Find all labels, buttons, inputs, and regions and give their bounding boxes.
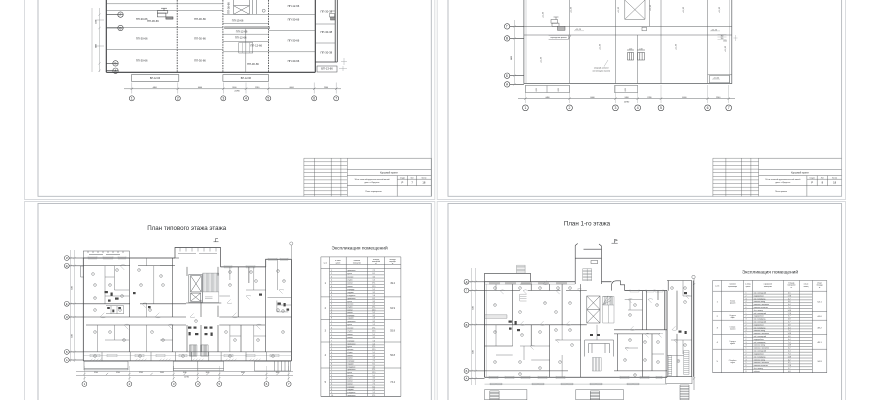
svg-text:жилая: жилая [347,334,352,336]
svg-text:название: название [729,284,736,286]
svg-text:площадь: площадь [816,285,822,287]
svg-text:прихожая: прихожая [347,343,355,345]
svg-text:7: 7 [572,345,573,347]
svg-text:5: 5 [746,362,747,364]
svg-text:4: 4 [95,332,96,334]
svg-text:2: 2 [556,330,557,332]
svg-text:кол-во: кол-во [804,284,809,286]
svg-text:6: 6 [678,361,679,363]
svg-text:6: 6 [630,315,631,317]
svg-text:Листов: Листов [832,177,837,179]
svg-text:5: 5 [746,304,747,306]
svg-text:3: 3 [331,304,332,306]
svg-text:каб. совещаний: каб. совещаний [754,291,766,294]
svg-text:ПП-30-66: ПП-30-66 [194,59,206,63]
svg-text:4: 4 [558,288,559,290]
svg-text:9: 9 [273,356,274,358]
svg-text:Листов: Листов [421,177,426,179]
svg-text:с/узел: с/узел [347,352,352,354]
svg-text:9: 9 [520,374,521,376]
svg-text:2: 2 [235,340,236,342]
svg-text:8.1: 8.1 [372,273,375,275]
svg-text:4: 4 [637,106,639,110]
svg-text:прихожая: прихожая [347,395,355,397]
svg-text:1: 1 [331,298,332,300]
svg-text:кладовая: кладовая [347,295,355,297]
svg-text:1.6: 1.6 [372,340,375,342]
svg-text:12.5: 12.5 [372,309,376,311]
svg-text:73.4: 73.4 [390,381,395,384]
svg-text:4: 4 [331,279,332,281]
svg-text:17.1: 17.1 [372,327,376,329]
svg-text:3040: 3040 [160,372,164,374]
svg-text:3: 3 [746,342,747,344]
svg-text:2: 2 [331,324,332,326]
svg-text:гардеробная: гардеробная [754,353,764,355]
svg-text:площадь: площадь [389,259,395,261]
svg-text:17.8: 17.8 [788,365,791,367]
svg-text:коридор: коридор [347,289,354,291]
svg-text:1.6: 1.6 [372,381,375,383]
svg-text:жилая: жилая [347,286,352,288]
svg-text:6400: 6400 [72,286,74,290]
svg-text:название: название [354,260,361,262]
svg-text:360: 360 [721,36,724,38]
svg-text:6: 6 [331,286,332,288]
svg-text:ПП-12-66: ПП-12-66 [288,4,300,8]
svg-text:3240: 3240 [183,372,187,374]
svg-text:2500: 2500 [96,20,98,24]
svg-text:1: 1 [524,106,526,110]
svg-text:Курсовой проект: Курсовой проект [791,171,810,174]
svg-text:жилая: жилая [347,337,352,339]
svg-text:2: 2 [746,339,747,341]
svg-text:ПП-36-66: ПП-36-66 [226,2,230,14]
svg-text:2400: 2400 [624,97,628,99]
svg-text:2: 2 [331,372,332,374]
svg-text:6: 6 [140,356,141,358]
svg-text:кухня: кухня [347,372,352,374]
svg-text:ПП-30-38: ПП-30-38 [320,51,332,55]
svg-text:6000: 6000 [682,97,686,99]
svg-text:5.1: 5.1 [372,375,375,377]
svg-text:Курсовой проект: Курсовой проект [380,171,399,174]
svg-text:2: 2 [746,295,747,297]
svg-text:6: 6 [331,358,332,360]
svg-text:Б: Б [466,369,468,373]
svg-text:План перекрытия: План перекрытия [365,191,381,193]
svg-text:3.2: 3.2 [372,292,375,294]
svg-text:быт. помещ: быт. помещ [754,310,764,312]
svg-text:8: 8 [331,292,332,294]
svg-text:9: 9 [196,321,197,323]
svg-text:Стадия: Стадия [810,177,815,179]
svg-text:10: 10 [331,395,333,397]
svg-text:+11,25: +11,25 [541,56,543,63]
svg-text:6400: 6400 [473,306,475,310]
svg-text:4: 4 [331,306,332,308]
svg-text:6: 6 [251,272,252,274]
svg-text:6: 6 [707,106,709,110]
svg-text:5: 5 [746,333,747,335]
svg-text:каб. совещаний: каб. совещаний [754,335,766,338]
svg-text:коридор: коридор [347,386,354,388]
svg-text:4.2: 4.2 [788,359,790,361]
svg-text:3.2: 3.2 [372,389,375,391]
svg-text:2: 2 [569,106,571,110]
svg-text:помещения: помещения [353,262,361,264]
svg-text:7: 7 [278,271,279,273]
svg-text:8: 8 [495,332,496,334]
svg-text:8: 8 [331,363,332,365]
svg-text:комната косметик: комната косметик [754,307,768,309]
svg-text:Р: Р [402,181,404,185]
svg-text:5: 5 [95,285,96,287]
svg-text:2400: 2400 [232,87,236,89]
svg-text:Лист: Лист [410,177,414,179]
svg-text:2960: 2960 [716,97,720,99]
svg-text:2: 2 [278,310,279,312]
svg-text:1.2: 1.2 [372,343,375,345]
svg-text:ПП-30-66: ПП-30-66 [247,62,259,66]
svg-text:9: 9 [522,335,523,337]
svg-text:+11,25: +11,25 [725,45,727,52]
svg-text:кладовая: кладовая [347,392,355,394]
svg-text:4: 4 [331,352,332,354]
svg-text:5.7: 5.7 [788,321,790,323]
svg-text:5: 5 [230,272,231,274]
svg-text:4: 4 [645,360,646,362]
svg-text:14.8: 14.8 [788,333,791,335]
svg-text:3: 3 [746,356,747,358]
svg-text:гардеробная: гардеробная [754,295,764,297]
svg-text:2: 2 [331,301,332,303]
svg-text:3: 3 [540,288,541,290]
svg-text:7: 7 [331,386,332,388]
svg-text:В: В [466,323,468,327]
svg-text:4.4: 4.4 [788,327,790,329]
svg-text:7: 7 [331,340,332,342]
svg-text:В: В [506,37,508,41]
svg-text:2: 2 [635,305,636,307]
svg-text:лоджия: лоджия [347,292,353,294]
svg-text:7: 7 [331,289,332,291]
svg-text:4.8: 4.8 [788,336,790,338]
svg-text:3200: 3200 [276,372,280,374]
svg-text:гардеробная: гардеробная [754,324,764,326]
svg-text:3: 3 [657,305,658,307]
svg-text:9: 9 [331,366,332,368]
svg-text:План кровли: План кровли [775,191,787,193]
svg-text:6: 6 [331,312,332,314]
svg-text:6640: 6640 [241,372,245,374]
svg-text:24780: 24780 [184,376,189,378]
svg-text:каб. заведующ: каб. заведующ [754,327,766,329]
svg-text:5.1: 5.1 [372,289,375,291]
svg-text:Экспликация помещений: Экспликация помещений [742,268,798,275]
svg-text:помещения: помещения [764,286,772,288]
svg-text:Д: Д [466,280,468,284]
svg-text:8: 8 [746,371,747,373]
svg-text:каб. заведующ: каб. заведующ [754,298,766,300]
svg-text:1300: 1300 [723,40,727,42]
svg-text:лоджия: лоджия [347,389,353,391]
svg-text:Лист: Лист [821,177,825,179]
svg-text:8.1: 8.1 [372,298,375,300]
svg-text:12.5: 12.5 [372,349,376,351]
svg-text:7.2: 7.2 [372,383,375,385]
svg-text:3: 3 [746,319,747,321]
svg-text:55.8: 55.8 [390,330,395,333]
svg-text:9: 9 [570,303,571,305]
svg-text:8.1: 8.1 [372,363,375,365]
svg-text:390: 390 [721,38,724,40]
svg-text:1: 1 [746,350,747,352]
svg-text:1: 1 [746,292,747,294]
svg-text:4.4: 4.4 [788,339,790,341]
svg-text:ванная: ванная [347,276,353,278]
svg-text:с/узел: с/узел [347,331,352,333]
svg-text:4: 4 [672,288,673,290]
svg-text:3: 3 [258,340,259,342]
svg-text:ванная: ванная [347,327,353,329]
svg-text:3: 3 [614,106,616,110]
svg-text:3.2: 3.2 [372,276,375,278]
svg-text:поликл: поликл [730,329,735,331]
svg-text:ванная: ванная [347,304,353,306]
svg-text:17.1: 17.1 [372,395,376,397]
svg-text:+11,25: +11,25 [650,4,652,11]
svg-text:+11,25: +11,25 [543,11,545,18]
svg-text:4.4: 4.4 [788,350,790,352]
svg-text:комната завед: комната завед [754,330,765,332]
svg-text:лоджия: лоджия [347,318,353,320]
svg-text:4: 4 [245,97,247,101]
svg-text:1.2: 1.2 [372,279,375,281]
svg-text:1: 1 [746,321,747,323]
svg-text:9: 9 [230,285,231,287]
svg-text:3: 3 [283,311,284,313]
svg-text:отдел: отдел [730,362,734,364]
svg-text:3.2: 3.2 [372,378,375,380]
svg-text:Г: Г [120,13,122,17]
svg-text:7: 7 [331,361,332,363]
svg-text:1: 1 [331,369,332,371]
svg-text:+11,25: +11,25 [600,43,602,50]
svg-text:каб. заведующ: каб. заведующ [754,342,766,344]
svg-text:6: 6 [540,368,541,370]
svg-text:5: 5 [110,332,111,334]
svg-text:комната завед: комната завед [754,301,765,303]
svg-text:Д: Д [66,315,68,319]
svg-text:дом в г. Иркутске: дом в г. Иркутске [775,182,790,184]
svg-text:2: 2 [95,310,96,312]
svg-text:жилая: жилая [347,309,352,311]
svg-text:1: 1 [331,343,332,345]
svg-text:4: 4 [495,362,496,364]
svg-text:3: 3 [222,97,224,101]
svg-text:коридор: коридор [347,315,354,317]
svg-text:1.Эл: 1.Эл [629,48,632,50]
svg-text:6: 6 [110,285,111,287]
svg-text:8: 8 [630,340,631,342]
svg-text:4.5: 4.5 [788,292,790,294]
svg-text:2: 2 [331,346,332,348]
svg-text:БП-12-66: БП-12-66 [150,77,161,80]
svg-text:1.6: 1.6 [372,358,375,360]
svg-text:1: 1 [746,313,747,315]
svg-text:комната завед: комната завед [754,345,765,347]
svg-text:6: 6 [124,340,125,342]
svg-text:+11,25: +11,25 [683,6,685,13]
svg-text:8: 8 [331,318,332,320]
svg-text:ПП-30-38: ПП-30-38 [320,10,332,14]
svg-text:8: 8 [95,298,96,300]
svg-text:+11,25: +11,25 [719,6,721,13]
svg-text:Экспликация помещений: Экспликация помещений [332,245,388,252]
svg-text:4: 4 [746,359,747,361]
svg-text:7: 7 [746,310,747,312]
svg-text:3200: 3200 [139,372,143,374]
svg-text:6400: 6400 [473,350,475,354]
svg-text:1: 1 [556,312,557,314]
svg-text:коридор: коридор [347,340,354,342]
svg-text:прихожая: прихожая [347,321,355,323]
svg-text:жилая: жилая [347,358,352,360]
svg-text:6: 6 [331,383,332,385]
svg-text:помещения: помещения [787,285,795,287]
svg-text:прихожая: прихожая [347,369,355,371]
svg-text:3240: 3240 [116,372,120,374]
svg-text:ограждение кровли: ограждение кровли [550,37,566,39]
svg-text:ПП-30-66: ПП-30-66 [136,59,148,63]
svg-text:2: 2 [746,353,747,355]
svg-text:с/узел: с/узел [347,279,352,281]
svg-text:8: 8 [331,389,332,391]
svg-text:5: 5 [95,356,96,358]
svg-text:5: 5 [267,97,269,101]
svg-text:общая: общая [817,283,822,285]
svg-text:6400: 6400 [511,56,513,60]
svg-text:каб. заведующ: каб. заведующ [754,319,766,321]
svg-text:56.8: 56.8 [390,354,395,357]
svg-text:4: 4 [331,331,332,333]
svg-text:5: 5 [331,283,332,285]
svg-text:4: 4 [331,378,332,380]
svg-text:17.1: 17.1 [372,346,376,348]
svg-text:1.6: 1.6 [372,295,375,297]
svg-text:6: 6 [495,305,496,307]
svg-text:6: 6 [313,97,315,101]
svg-text:5: 5 [331,309,332,311]
svg-text:9: 9 [331,392,332,394]
svg-text:1: 1 [331,321,332,323]
svg-text:кухня: кухня [347,324,352,326]
svg-text:БП-13-66: БП-13-66 [321,66,333,70]
svg-text:6400: 6400 [96,44,98,48]
svg-text:7: 7 [728,106,730,110]
svg-text:24780: 24780 [624,101,629,103]
svg-text:8: 8 [230,356,231,358]
svg-text:3: 3 [139,270,140,272]
svg-text:6: 6 [331,337,332,339]
svg-text:3: 3 [570,330,571,332]
svg-text:5: 5 [331,381,332,383]
svg-text:9: 9 [141,285,142,287]
svg-text:6000: 6000 [590,97,594,99]
svg-text:2,05: 2,05 [536,88,538,91]
svg-text:2,05: 2,05 [625,88,627,91]
svg-text:4.8: 4.8 [788,301,790,303]
svg-text:3: 3 [746,327,747,329]
svg-text:План типового этажа этажа: План типового этажа этажа [147,225,227,232]
svg-text:гардеробная: гардеробная [754,339,764,341]
svg-text:лоджия: лоджия [347,363,353,365]
svg-text:4.8: 4.8 [788,319,790,321]
svg-text:жилая: жилая [347,381,352,383]
svg-text:17.1: 17.1 [372,306,376,308]
svg-text:каб. совещаний: каб. совещаний [754,312,766,315]
svg-text:ПП-30-66: ПП-30-66 [194,17,206,21]
svg-text:1: 1 [93,274,94,276]
svg-text:кухня: кухня [347,273,352,275]
svg-text:Стадия: Стадия [400,177,405,179]
svg-text:+11,25: +11,25 [676,43,678,50]
svg-text:8: 8 [635,375,636,377]
svg-text:4: 4 [150,310,151,312]
svg-text:ПП-12-66: ПП-12-66 [250,44,262,48]
svg-text:1: 1 [746,336,747,338]
svg-text:7: 7 [560,362,561,364]
svg-text:5.7: 5.7 [788,368,790,370]
svg-text:5.1: 5.1 [372,312,375,314]
svg-text:7: 7 [520,312,521,314]
svg-text:16-ти этажный крупнопанельный: 16-ти этажный крупнопанельный жилой [765,178,800,181]
svg-text:8: 8 [545,303,546,305]
svg-text:7: 7 [122,296,123,298]
svg-text:комната в косметик: комната в косметик [754,333,770,335]
svg-text:4.2: 4.2 [788,348,790,350]
svg-text:В: В [119,26,121,30]
svg-text:6000: 6000 [198,87,202,89]
svg-text:4.8: 4.8 [788,371,790,373]
svg-text:щения: щения [336,262,341,264]
svg-text:ПП-30-66: ПП-30-66 [136,37,148,41]
svg-text:кабинет: кабинет [754,371,760,373]
svg-text:прихожая: прихожая [347,298,355,300]
svg-text:4.8: 4.8 [788,324,790,326]
svg-text:площадь: площадь [373,259,379,261]
svg-text:Б: Б [66,350,68,354]
svg-text:12.5: 12.5 [372,372,376,374]
svg-text:1: 1 [256,281,257,283]
svg-text:3: 3 [331,327,332,329]
svg-text:комната в косметик: комната в косметик [754,348,770,350]
svg-text:5.1: 5.1 [372,334,375,336]
svg-text:1.6: 1.6 [372,318,375,320]
svg-text:5: 5 [331,334,332,336]
svg-text:6: 6 [746,307,747,309]
svg-text:1.2: 1.2 [372,392,375,394]
svg-text:2960: 2960 [324,87,328,89]
svg-text:7: 7 [152,332,153,334]
svg-text:админ: админ [730,343,735,345]
svg-text:5: 5 [331,355,332,357]
svg-text:17.8: 17.8 [788,295,791,297]
svg-text:2: 2 [520,288,521,290]
svg-text:каб. совещаний: каб. совещаний [754,349,766,352]
svg-text:Б: Б [114,62,116,66]
